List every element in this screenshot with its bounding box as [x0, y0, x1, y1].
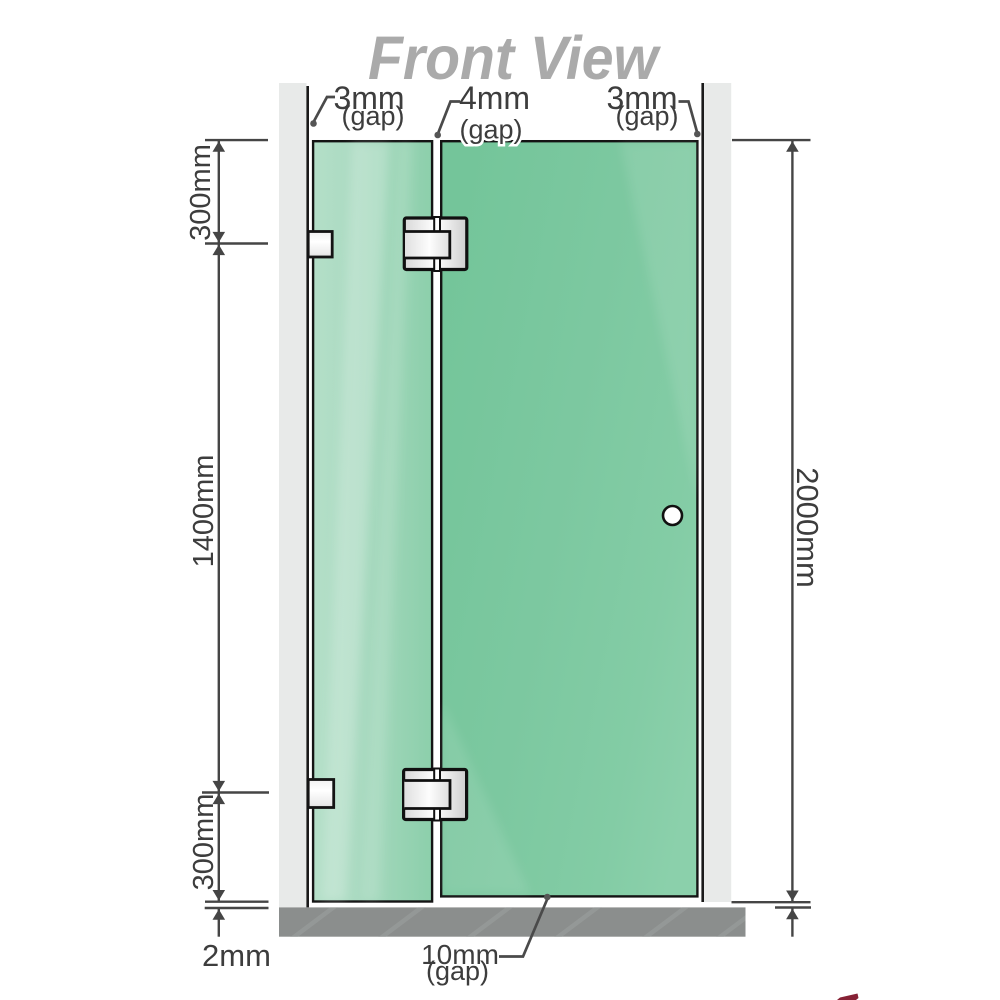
svg-text:2000mm: 2000mm [790, 467, 825, 588]
svg-text:(gap): (gap) [341, 101, 404, 131]
svg-text:(gap): (gap) [615, 101, 678, 131]
svg-text:1400mm: 1400mm [188, 455, 220, 568]
svg-text:(gap): (gap) [459, 115, 522, 145]
svg-text:2mm: 2mm [202, 938, 271, 973]
svg-text:300mm: 300mm [185, 144, 217, 241]
svg-text:(gap): (gap) [426, 956, 489, 986]
svg-text:300mm: 300mm [188, 794, 220, 891]
svg-text:4mm: 4mm [459, 80, 530, 116]
